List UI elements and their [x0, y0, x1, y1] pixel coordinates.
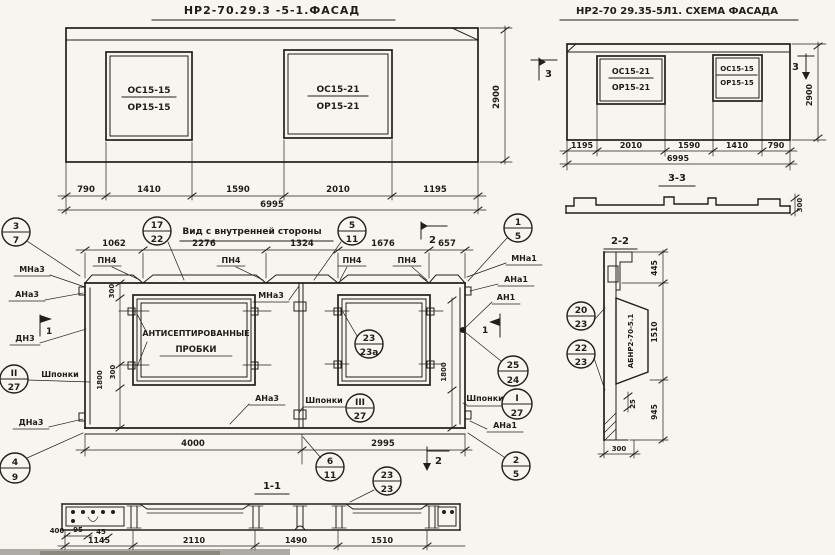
dim-790b: 790	[768, 141, 785, 150]
label-shponki-right: Шпонки	[466, 394, 503, 403]
section-marker-3-left: 3	[531, 58, 557, 80]
section-3-3-title: 3-3	[668, 173, 686, 184]
schema-title: НР2-70 29.35-5Л1. СХЕМА ФАСАДА	[576, 6, 778, 17]
callout-II-27-bottom: 27	[8, 383, 21, 393]
inner-view-title: Вид с внутренней стороны	[182, 227, 321, 237]
label-an1: АН1	[497, 293, 516, 302]
callout-II-27: II 27 Шпонки	[0, 365, 90, 393]
callout-2-5-top: 2	[513, 456, 519, 466]
inner-window-right: 23 23а	[325, 295, 443, 385]
callout-4-9-top: 4	[12, 458, 18, 468]
label-shponki-left: Шпонки	[41, 370, 78, 379]
section-marker-3-right-label: 3	[792, 62, 799, 73]
callout-1-5: 1 5	[468, 214, 532, 281]
callout-20-23: 20 23	[567, 302, 605, 330]
section-marker-3-left-label: 3	[545, 69, 552, 80]
facade-dimensions: 790 1410 1590 2010 1195 6995 2900	[58, 26, 512, 214]
callout-4-9-bottom: 9	[12, 473, 18, 483]
callout-III-27: III 27 Шпонки	[299, 394, 374, 422]
facade-win2-mark-top: ОС15-21	[316, 85, 359, 95]
label-pn4-4: ПН4	[398, 256, 417, 265]
facade-window-left: ОС15-15 ОР15-15	[106, 52, 192, 140]
dim-1676: 1676	[371, 239, 395, 249]
callout-6-11-top: 6	[327, 457, 333, 467]
dim-height-2900b: 2900	[805, 83, 814, 106]
panel-drawing: НР2-70.29.3 -5-1.ФАСАД ОС15-15 ОР15-15 О…	[0, 0, 835, 555]
facade-window-right: ОС15-21 ОР15-21	[284, 50, 392, 138]
dim-445: 445	[650, 260, 659, 276]
label-ana3-top: АНа3	[15, 290, 39, 299]
callout-1-5-bottom: 5	[515, 232, 521, 242]
dim-1800-left: 1800	[96, 370, 104, 390]
dim-1490: 1490	[285, 536, 308, 545]
dim-6995b: 6995	[667, 154, 690, 163]
dim-1510: 1510	[371, 536, 394, 545]
edge-labels-right: МНа1 АНа1 АН1 АНа1	[465, 254, 542, 432]
label-mna3-mid: МНа3	[258, 291, 284, 300]
label-pn4-1: ПН4	[98, 256, 117, 265]
section-3-3: 3-3 300	[566, 173, 804, 216]
section-marker-2-top-label: 2	[429, 235, 436, 246]
callout-23-23-top: 23	[381, 471, 394, 481]
dim-945: 945	[650, 404, 659, 420]
dim-95: 95	[73, 526, 83, 534]
schema-window-right: ОС15-15 ОР15-15	[713, 55, 762, 101]
dim-1410: 1410	[137, 185, 161, 195]
callout-25-24-bottom: 24	[507, 376, 520, 386]
callout-17-22: 17 22	[143, 217, 184, 280]
dim-300-bottom: 300	[612, 445, 627, 453]
dim-2010b: 2010	[620, 141, 643, 150]
dim-1590: 1590	[226, 185, 250, 195]
section-marker-1-right-label: 1	[482, 326, 488, 336]
edge-labels-left: МНа3 АНа3 ДН3 ДНа3	[9, 265, 86, 429]
callout-17-22-top: 17	[151, 221, 164, 231]
callout-1-5-top: 1	[515, 218, 521, 228]
dim-300-top: 300	[108, 284, 116, 299]
label-ana3-bot: АНа3	[255, 394, 279, 403]
label-mna3-top: МНа3	[19, 265, 45, 274]
label-dn3: ДН3	[15, 334, 34, 343]
callout-22-23-top: 22	[575, 344, 588, 354]
callout-4-9: 4 9	[0, 433, 83, 483]
callout-III-27-bottom: 27	[354, 412, 367, 422]
section-marker-1-left-label: 1	[46, 327, 52, 337]
schema-win1-mark-bottom: ОР15-21	[612, 83, 651, 92]
callout-6-11: 6 11	[303, 437, 344, 481]
label-mna1: МНа1	[511, 254, 537, 263]
callout-17-22-bottom: 22	[151, 235, 164, 245]
schema-win2-mark-bottom: ОР15-15	[720, 79, 754, 87]
callout-25-24: 25 24	[465, 332, 528, 386]
mid-labels: МНа3 АНа3	[230, 286, 299, 424]
section-marker-1-right: 1	[482, 314, 500, 337]
inner-view: 17 22 Вид с внутренней стороны 5 11 2	[0, 214, 542, 483]
callout-I-27: I 27 Шпонки	[463, 389, 532, 419]
facade-win1-mark-bottom: ОР15-15	[127, 103, 170, 113]
section-1-1: 1-1 23 23	[50, 467, 465, 550]
dim-4000: 4000	[181, 439, 205, 449]
callout-22-23: 22 23	[567, 340, 605, 390]
callout-23-23-bottom: 23	[381, 485, 394, 495]
callout-II-27-top: II	[11, 369, 18, 379]
callout-III-27-top: III	[355, 398, 365, 408]
mullion-profiles	[127, 506, 439, 530]
callout-23-23: 23 23	[350, 467, 401, 502]
callout-22-23-bottom: 23	[575, 358, 588, 368]
callout-6-11-bottom: 11	[324, 471, 337, 481]
facade-title: НР2-70.29.3 -5-1.ФАСАД	[184, 4, 360, 17]
section-2-2: 2-2 20 23 22 23 АБНР2-70-5.1	[567, 236, 668, 458]
schema-window-left: ОС15-21 ОР15-21	[597, 56, 665, 104]
dim-45: 45	[96, 528, 106, 536]
callout-23-23a-top: 23	[363, 334, 376, 344]
callout-23-23a-bottom: 23а	[360, 348, 379, 358]
section-marker-1-left: 1	[40, 315, 52, 337]
dim-1195: 1195	[423, 185, 447, 195]
dim-1324: 1324	[290, 239, 314, 249]
label-dna3: ДНа3	[19, 418, 44, 427]
dim-657: 657	[438, 239, 456, 249]
section-marker-3-right: 3	[792, 54, 814, 80]
schema-win2-mark-top: ОС15-15	[720, 65, 754, 73]
inner-window-left: АНТИСЕПТИРОВАННЫЕ ПРОБКИ	[119, 295, 271, 385]
dim-6995: 6995	[260, 200, 284, 210]
callout-3-7-top: 3	[13, 222, 19, 232]
dim-height-2900: 2900	[492, 85, 502, 109]
section-1-1-profile	[62, 504, 460, 530]
dim-1590b: 1590	[678, 141, 701, 150]
callout-I-27-bottom: 27	[511, 409, 524, 419]
facade-win2-mark-bottom: ОР15-21	[316, 102, 359, 112]
label-pn4-3: ПН4	[343, 256, 362, 265]
label-pn4-2: ПН4	[222, 256, 241, 265]
dim-1510b: 1510	[650, 322, 659, 343]
callout-3-7-bottom: 7	[13, 236, 19, 246]
dim-1062: 1062	[102, 239, 126, 249]
note-antiseptic-line1: АНТИСЕПТИРОВАННЫЕ	[142, 329, 249, 338]
dim-2010: 2010	[326, 185, 350, 195]
section-marker-2-bottom: 2	[423, 447, 449, 471]
dim-1410b: 1410	[726, 141, 749, 150]
callout-20-23-bottom: 23	[575, 320, 588, 330]
schema-win1-mark-top: ОС15-21	[612, 67, 651, 76]
section-2-2-profile: АБНР2-70-5.1	[604, 252, 648, 441]
callout-2-5: 2 5	[468, 433, 530, 480]
dim-1145: 1145	[88, 536, 111, 545]
callout-5-11-top: 5	[349, 221, 355, 231]
note-antiseptic-line2: ПРОБКИ	[175, 345, 216, 355]
dim-1195b: 1195	[571, 141, 594, 150]
blueprint-sheet: НР2-70.29.3 -5-1.ФАСАД ОС15-15 ОР15-15 О…	[0, 0, 835, 555]
dim-25: 25	[629, 399, 637, 409]
callout-5-11-bottom: 11	[346, 235, 359, 245]
callout-23-23a: 23 23а	[343, 312, 383, 358]
dim-2276: 2276	[192, 239, 216, 249]
callout-2-5-bottom: 5	[513, 470, 519, 480]
dim-thickness-300: 300	[796, 198, 804, 213]
facade-schema-view: НР2-70 29.35-5Л1. СХЕМА ФАСАДА ОС15-21 О…	[531, 6, 826, 170]
section-marker-2-bottom-label: 2	[435, 456, 442, 467]
label-shponki-mid: Шпонки	[305, 396, 342, 405]
section-2-2-title: 2-2	[611, 236, 629, 247]
dim-1800-right: 1800	[440, 362, 448, 382]
scan-artifact	[0, 549, 290, 555]
inner-bottom-dimensions: 4000 2995	[76, 434, 472, 464]
dim-790: 790	[77, 185, 95, 195]
facade-view: НР2-70.29.3 -5-1.ФАСАД ОС15-15 ОР15-15 О…	[58, 4, 512, 214]
dim-400: 400	[50, 527, 65, 535]
panel-mark-abnr: АБНР2-70-5.1	[627, 314, 635, 369]
dim-2995: 2995	[371, 439, 395, 449]
callout-25-24-top: 25	[507, 361, 520, 371]
callout-I-27-top: I	[515, 394, 518, 404]
label-ana1-top: АНа1	[504, 275, 528, 284]
dim-300-bot: 300	[109, 365, 117, 380]
dim-2110: 2110	[183, 536, 206, 545]
label-ana1-bot: АНа1	[493, 421, 517, 430]
facade-win1-mark-top: ОС15-15	[127, 86, 170, 96]
section-1-1-title: 1-1	[263, 481, 281, 492]
callout-20-23-top: 20	[575, 306, 588, 316]
